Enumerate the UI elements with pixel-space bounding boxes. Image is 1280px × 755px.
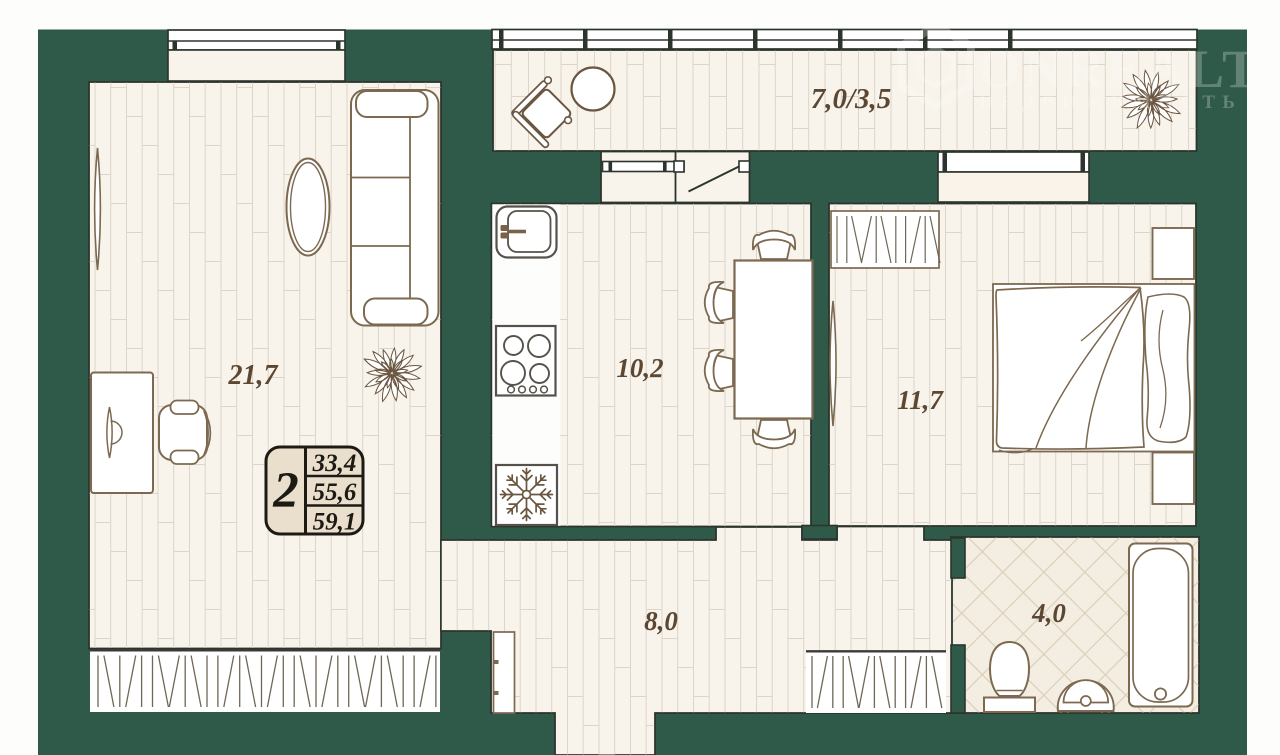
- svg-text:10,2: 10,2: [616, 353, 663, 383]
- svg-text:7,0/3,5: 7,0/3,5: [811, 83, 892, 115]
- svg-text:НЕДВИЖИМОСТЬ: НЕДВИЖИМОСТЬ: [979, 92, 1242, 113]
- svg-text:21,7: 21,7: [228, 360, 279, 391]
- svg-text:8,0: 8,0: [644, 606, 678, 636]
- svg-text:2: 2: [272, 463, 299, 519]
- svg-text:ONREALT: ONREALT: [978, 39, 1261, 99]
- svg-text:55,6: 55,6: [313, 479, 357, 506]
- svg-text:59,1: 59,1: [313, 509, 357, 536]
- svg-text:33,4: 33,4: [312, 450, 357, 477]
- svg-text:4,0: 4,0: [1031, 598, 1066, 628]
- svg-text:11,7: 11,7: [897, 385, 944, 415]
